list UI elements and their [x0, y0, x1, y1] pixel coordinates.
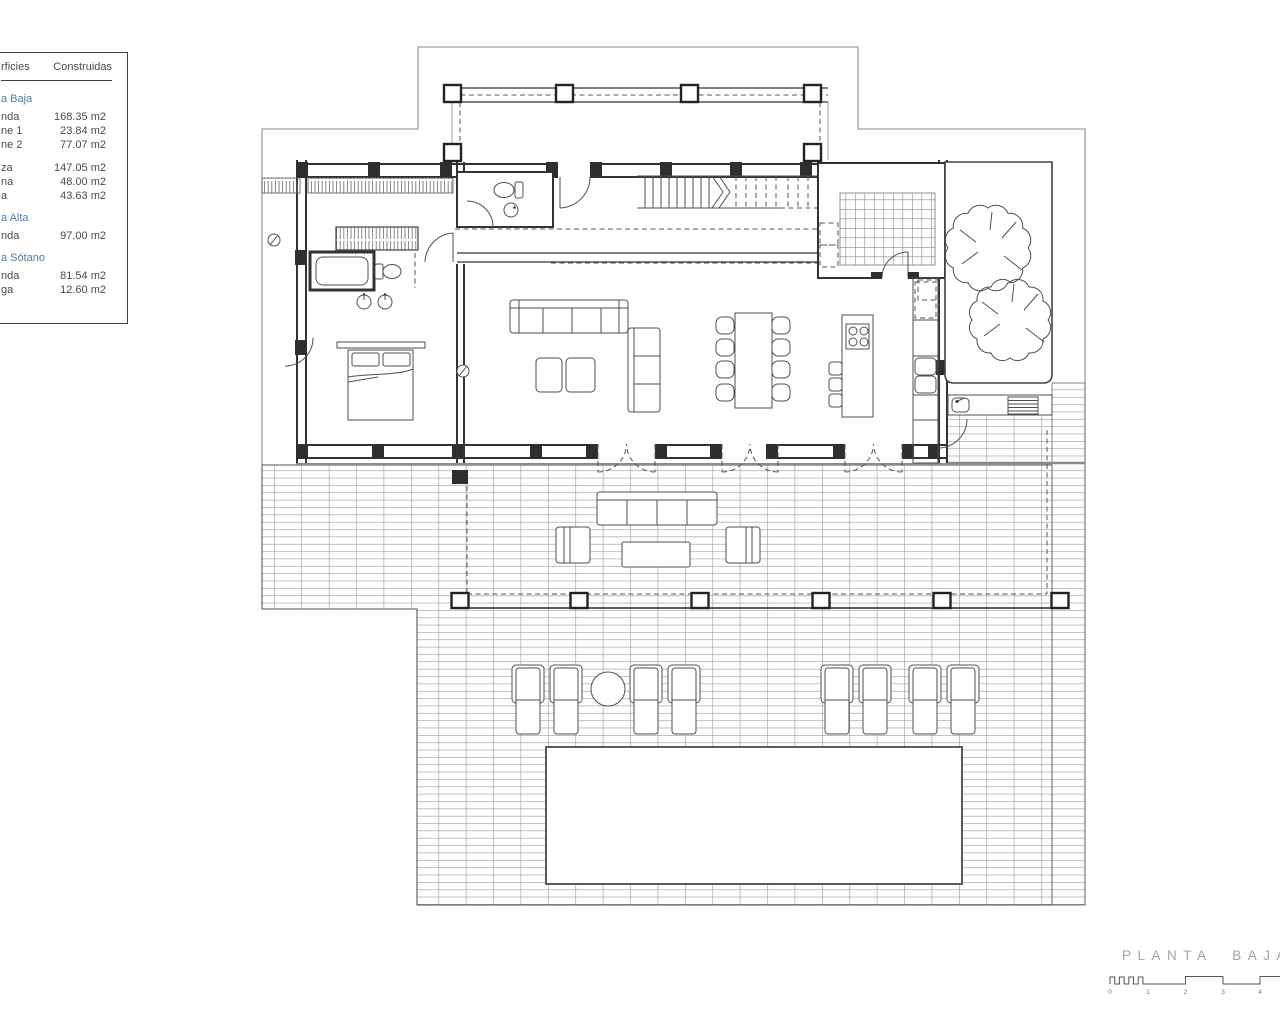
pergola-post: [452, 470, 468, 484]
floor-plan-drawing: 0 1 2 3 4: [0, 0, 1280, 1024]
fridge: [915, 358, 936, 375]
guest-wc: [457, 172, 553, 227]
wc-sink: [504, 203, 518, 217]
sofa: [510, 300, 628, 333]
stool: [829, 362, 842, 375]
stool: [829, 394, 842, 407]
chaise-sofa: [628, 328, 660, 412]
courtyard: [945, 162, 1052, 383]
plan-title: PLANTA BAJA: [1122, 948, 1280, 963]
upper-porch: [444, 85, 828, 161]
swimming-pool: [546, 747, 962, 884]
wardrobe: [308, 178, 453, 193]
coffee-table: [622, 542, 690, 567]
scale-bar: 0 1 2 3 4: [1108, 977, 1280, 997]
scale-tick: 4: [1258, 989, 1262, 996]
ottoman: [536, 358, 562, 392]
double-bed: [348, 350, 413, 420]
round-side-table: [591, 672, 625, 706]
dining-table: [716, 313, 790, 408]
floor-plan-sheet: rficies Construidas a Baja nda 168.35 m2…: [0, 0, 1280, 1024]
ottoman: [566, 358, 595, 392]
scale-tick: 3: [1221, 989, 1225, 996]
scale-tick: 2: [1184, 989, 1188, 996]
scale-tick: 1: [1146, 989, 1150, 996]
tiled-floor: [840, 193, 935, 265]
closet-island: [336, 227, 418, 250]
stool: [829, 378, 842, 391]
scale-tick: 0: [1108, 989, 1112, 996]
entry-steps: [262, 178, 300, 193]
